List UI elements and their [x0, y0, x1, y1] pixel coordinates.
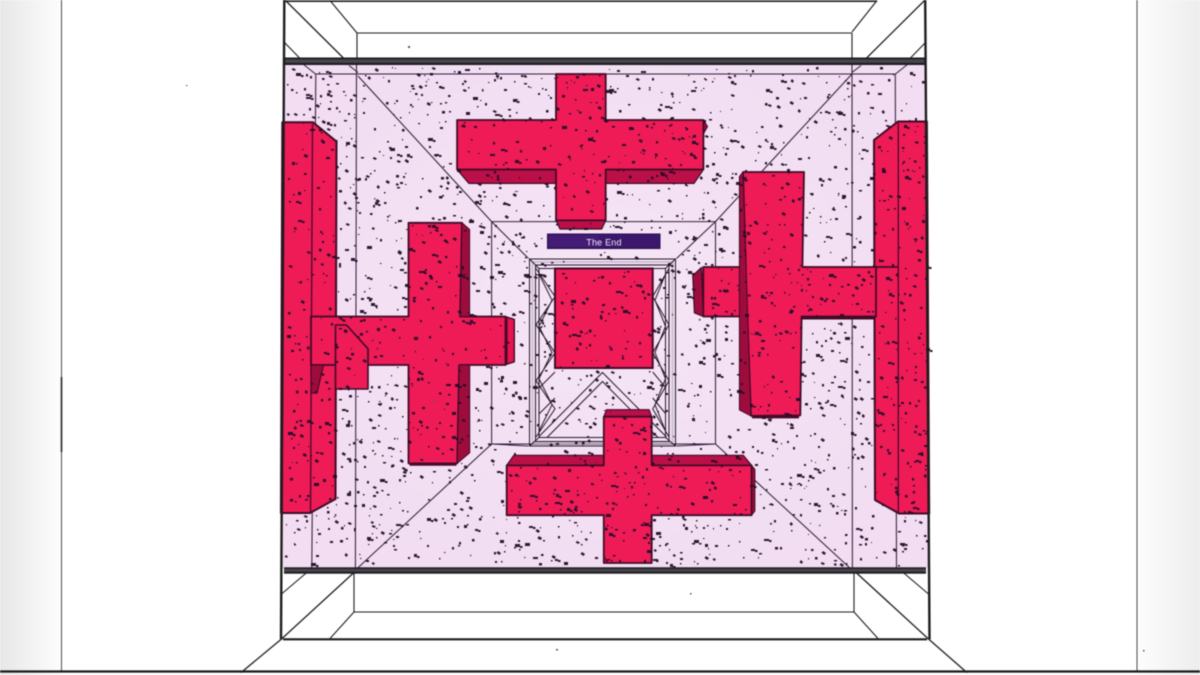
svg-text:The End: The End	[586, 237, 621, 247]
